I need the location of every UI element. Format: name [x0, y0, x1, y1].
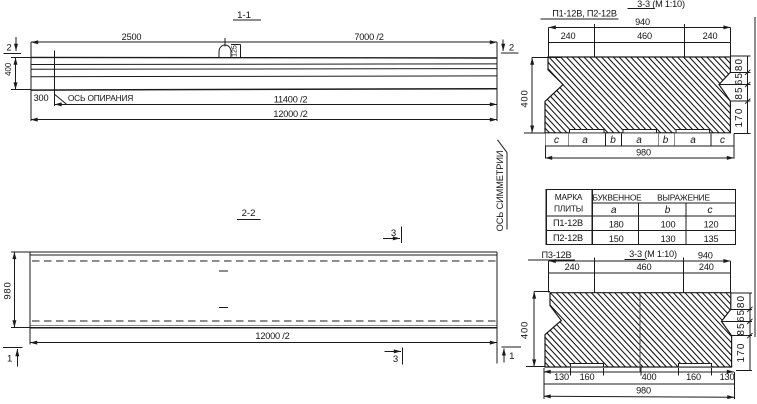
svg-text:940: 940 [698, 250, 713, 260]
svg-text:80: 80 [734, 58, 745, 71]
svg-text:180: 180 [609, 219, 624, 229]
svg-text:400: 400 [642, 372, 657, 382]
svg-text:БУКВЕННОЕ: БУКВЕННОЕ [592, 193, 642, 203]
svg-text:3-3 (М 1:10): 3-3 (М 1:10) [629, 249, 677, 259]
svg-text:П2-12В: П2-12В [553, 233, 583, 243]
svg-text:130: 130 [554, 372, 569, 382]
svg-text:а: а [611, 205, 617, 216]
svg-text:1: 1 [509, 351, 514, 362]
svg-text:130: 130 [720, 372, 735, 382]
svg-text:100: 100 [661, 219, 676, 229]
svg-text:ПЛИТЫ: ПЛИТЫ [554, 204, 583, 214]
svg-text:а: а [636, 135, 642, 146]
svg-text:150: 150 [609, 234, 624, 244]
svg-text:170: 170 [736, 343, 747, 363]
svg-text:b: b [665, 205, 671, 216]
svg-text:400: 400 [520, 321, 531, 339]
svg-text:2500: 2500 [122, 32, 142, 42]
svg-text:160: 160 [686, 372, 701, 382]
svg-text:240: 240 [565, 262, 580, 272]
svg-text:980: 980 [636, 147, 651, 157]
svg-text:85: 85 [736, 322, 747, 335]
svg-text:П3-12В: П3-12В [542, 250, 572, 260]
svg-text:11400 /2: 11400 /2 [274, 95, 308, 105]
svg-text:7000 /2: 7000 /2 [354, 32, 383, 42]
svg-text:12000 /2: 12000 /2 [273, 109, 307, 119]
svg-text:125: 125 [232, 45, 239, 57]
svg-text:ОСЬ ОПИРАНИЯ: ОСЬ ОПИРАНИЯ [68, 93, 133, 103]
svg-text:980: 980 [3, 281, 14, 299]
svg-text:400: 400 [520, 89, 531, 107]
svg-text:2: 2 [509, 42, 514, 53]
svg-text:2-2: 2-2 [242, 208, 256, 219]
svg-text:ВЫРАЖЕНИЕ: ВЫРАЖЕНИЕ [657, 193, 710, 203]
svg-text:а: а [582, 135, 588, 146]
svg-text:3: 3 [391, 228, 396, 239]
svg-text:460: 460 [637, 31, 652, 41]
svg-text:МАРКА: МАРКА [555, 192, 583, 202]
svg-text:ОСЬ СИММЕТРИИ: ОСЬ СИММЕТРИИ [495, 151, 505, 232]
svg-text:300: 300 [34, 93, 49, 103]
svg-text:1: 1 [7, 354, 12, 365]
svg-text:а: а [690, 135, 696, 146]
svg-text:c: c [708, 205, 713, 216]
svg-text:b: b [610, 135, 616, 146]
svg-text:с: с [720, 135, 725, 146]
svg-text:65: 65 [736, 309, 747, 322]
svg-text:b: b [663, 135, 669, 146]
svg-text:1-1: 1-1 [237, 10, 251, 21]
svg-text:240: 240 [561, 31, 576, 41]
svg-text:85: 85 [734, 86, 745, 99]
svg-text:170: 170 [734, 108, 745, 128]
svg-text:400: 400 [4, 62, 13, 76]
svg-text:П1-12В, П2-12В: П1-12В, П2-12В [552, 9, 617, 19]
svg-text:12000 /2: 12000 /2 [255, 331, 289, 341]
svg-text:135: 135 [704, 234, 719, 244]
svg-text:3: 3 [393, 354, 398, 365]
svg-text:240: 240 [703, 31, 718, 41]
svg-text:65: 65 [734, 72, 745, 85]
svg-text:940: 940 [635, 17, 650, 27]
svg-text:П1-12В: П1-12В [553, 218, 583, 228]
svg-text:3-3 (М 1:10): 3-3 (М 1:10) [637, 0, 685, 9]
svg-text:160: 160 [580, 372, 595, 382]
svg-text:980: 980 [636, 385, 651, 395]
svg-text:120: 120 [704, 219, 719, 229]
svg-text:460: 460 [637, 262, 652, 272]
svg-text:130: 130 [661, 234, 676, 244]
svg-text:2: 2 [6, 43, 11, 54]
svg-text:с: с [554, 135, 559, 146]
svg-text:80: 80 [736, 295, 747, 308]
svg-text:240: 240 [699, 262, 714, 272]
